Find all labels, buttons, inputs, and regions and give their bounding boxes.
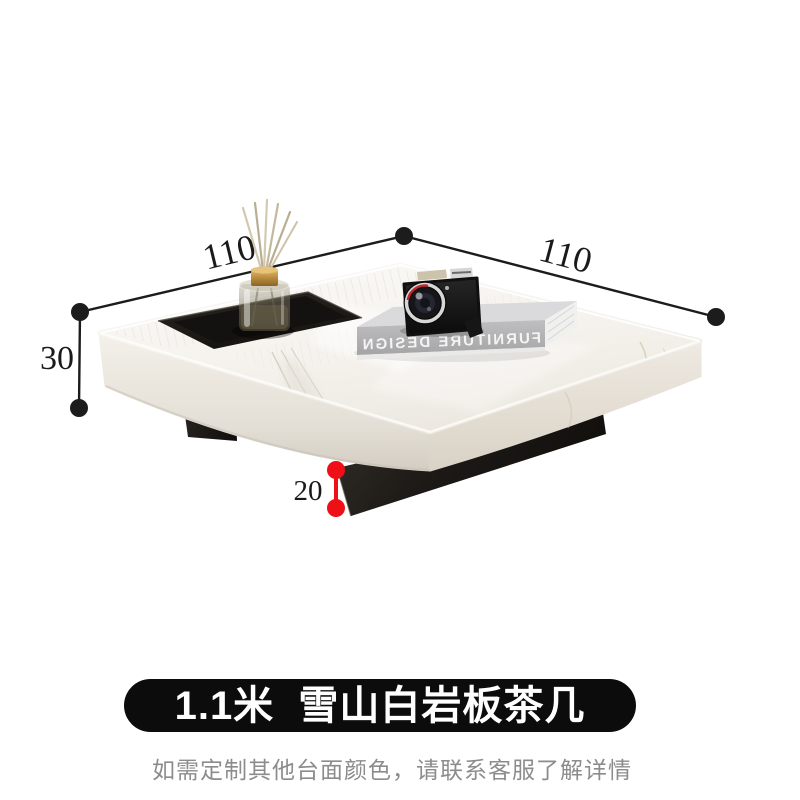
product-title: 1.1米 雪山白岩板茶几	[124, 679, 636, 732]
dim-dot-red	[327, 499, 345, 517]
jar-highlight	[244, 289, 250, 327]
dim-label-base-height: 20	[294, 475, 323, 507]
lens-highlight	[416, 293, 423, 300]
dim-dot	[70, 399, 88, 417]
dim-base-height: 20	[294, 461, 346, 517]
product-title-banner: 1.1米 雪山白岩板茶几	[124, 679, 636, 732]
dim-label-height: 30	[40, 340, 74, 377]
tabletop	[100, 265, 700, 470]
jar-highlight	[281, 291, 284, 325]
dim-height-left: 30	[40, 312, 88, 417]
product-image: 110 110 30	[0, 0, 800, 800]
diffuser-cap-top	[251, 267, 278, 274]
customization-note: 如需定制其他台面颜色，请联系客服了解详情	[0, 751, 784, 785]
camera-button	[445, 286, 449, 290]
lens-highlight	[427, 307, 431, 311]
dim-dot-red	[327, 461, 345, 479]
dim-line	[79, 312, 80, 408]
dim-dot	[707, 308, 725, 326]
